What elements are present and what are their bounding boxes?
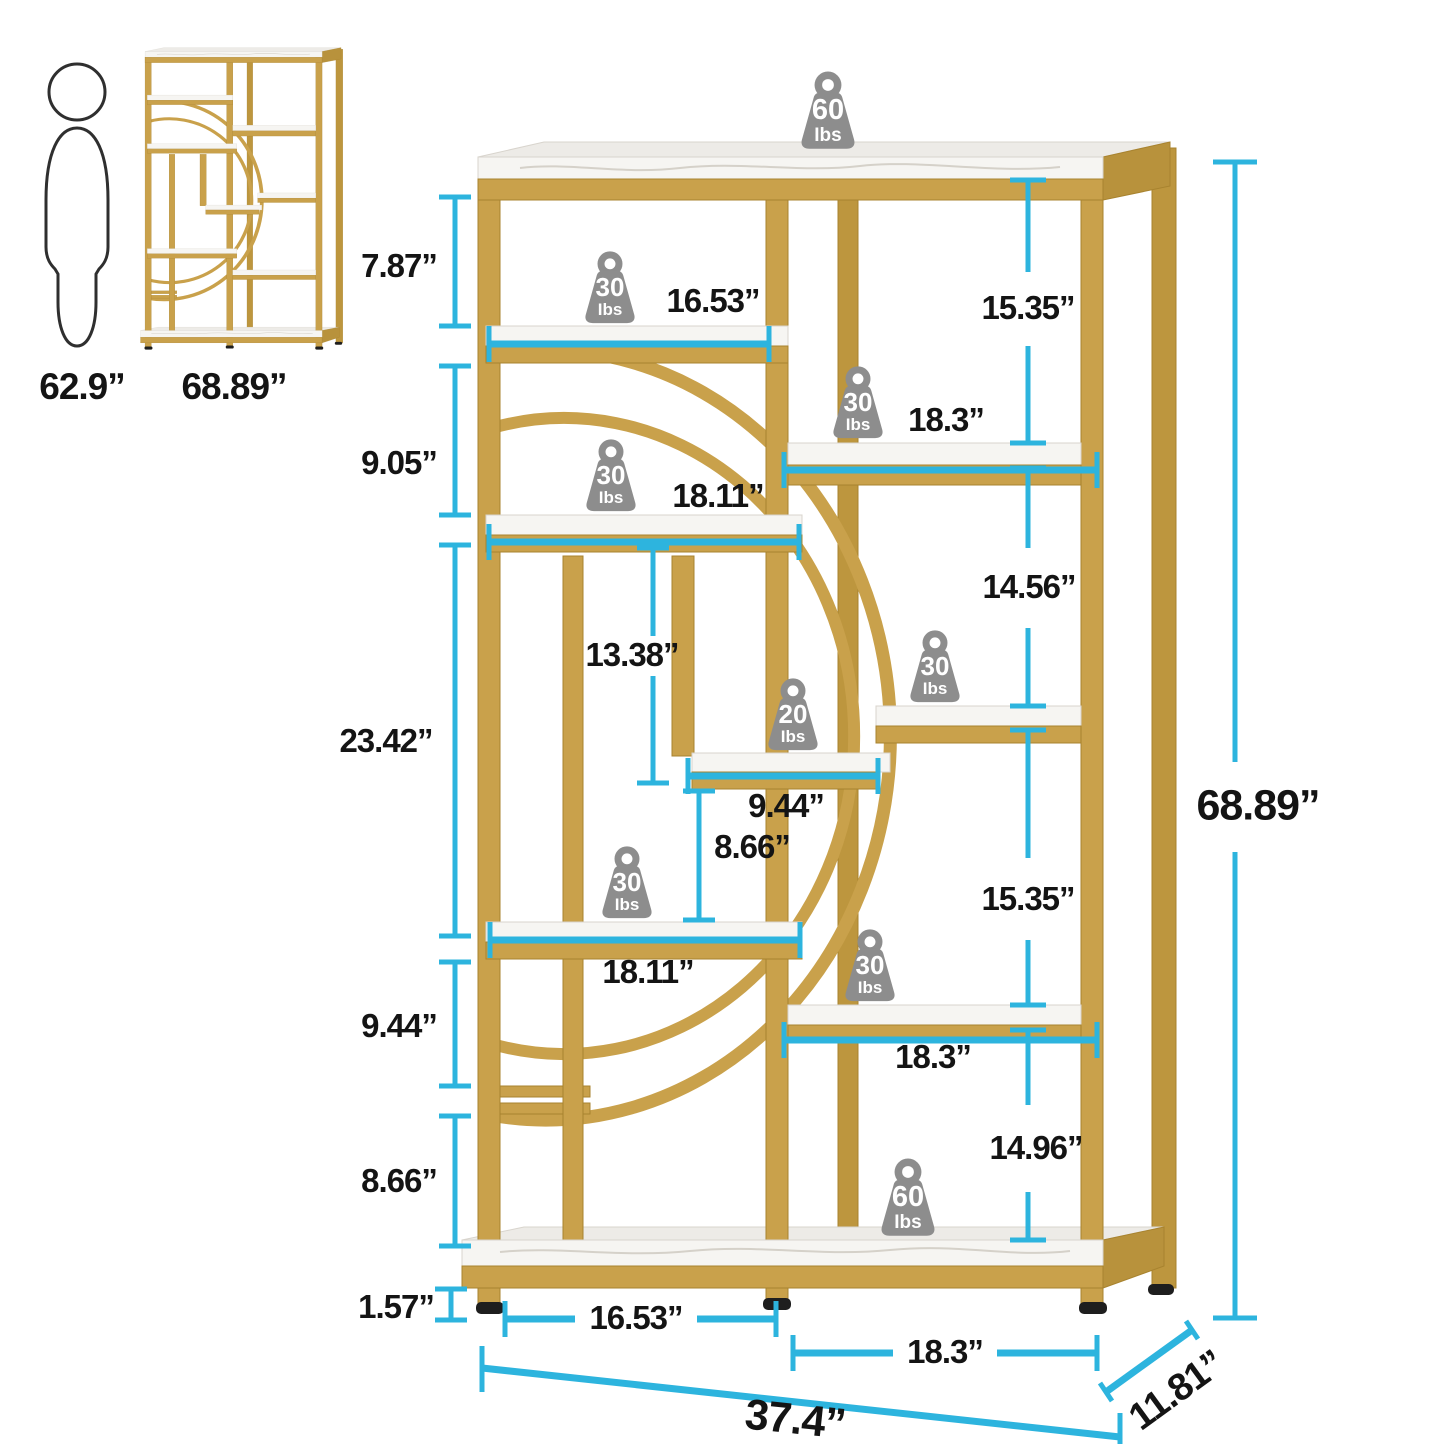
dim-mid-lower: 8.66” xyxy=(714,828,790,866)
weight-value: 20 xyxy=(754,701,832,728)
dim-bottom-left: 16.53” xyxy=(589,1299,682,1337)
weight-unit: Ibs xyxy=(831,979,909,997)
weight-value: 30 xyxy=(896,653,974,680)
weight-value: 30 xyxy=(831,952,909,979)
person-icon xyxy=(46,64,108,346)
weight-unit: Ibs xyxy=(571,301,649,319)
weight-badge-right-shelf-3: 30Ibs xyxy=(831,928,909,1004)
weight-badge-right-shelf-1: 30Ibs xyxy=(819,365,897,441)
weight-unit: Ibs xyxy=(754,728,832,746)
dim-overall-width: 37.4” xyxy=(743,1390,848,1445)
dim-shelf-left-3: 18.11” xyxy=(602,953,693,991)
weight-badge-left-shelf-3: 30Ibs xyxy=(588,845,666,921)
weight-badge-right-shelf-2: 30Ibs xyxy=(896,629,974,705)
weight-value: 30 xyxy=(571,274,649,301)
dim-shelf-right-1: 18.3” xyxy=(908,401,984,439)
weight-badge-middle-shelf: 20Ibs xyxy=(754,677,832,753)
dim-left-4: 9.44” xyxy=(361,1007,437,1045)
weight-badge-left-shelf-2: 30Ibs xyxy=(572,438,650,514)
weight-badge-left-shelf-1: 30Ibs xyxy=(571,250,649,326)
dim-left-5: 8.66” xyxy=(361,1162,437,1200)
weight-value: 30 xyxy=(588,869,666,896)
weight-value: 60 xyxy=(786,95,870,125)
weight-unit: Ibs xyxy=(572,489,650,507)
dim-shelf-middle: 9.44” xyxy=(748,787,824,825)
dim-right-3: 15.35” xyxy=(981,880,1074,918)
weight-unit: Ibs xyxy=(866,1213,950,1233)
dim-left-6: 1.57” xyxy=(358,1288,434,1326)
dim-right-1: 15.35” xyxy=(981,289,1074,327)
weight-value: 30 xyxy=(819,389,897,416)
weight-unit: Ibs xyxy=(588,896,666,914)
weight-value: 60 xyxy=(866,1182,950,1212)
weight-unit: Ibs xyxy=(896,680,974,698)
dim-overall-height: 68.89” xyxy=(1196,782,1319,831)
mini-shelf-icon xyxy=(141,48,343,350)
dim-left-2: 9.05” xyxy=(361,444,437,482)
weight-unit: Ibs xyxy=(786,126,870,146)
dim-shelf-right-3: 18.3” xyxy=(895,1038,971,1076)
dim-shelf-left-2: 18.11” xyxy=(672,477,763,515)
dim-mid-upper: 13.38” xyxy=(585,636,678,674)
dim-shelf-left-1: 16.53” xyxy=(666,282,759,320)
dim-bottom-right: 18.3” xyxy=(907,1333,983,1371)
dim-left-3: 23.42” xyxy=(339,722,432,760)
diagram-graphics xyxy=(0,0,1445,1445)
weight-badge-top: 60Ibs xyxy=(786,70,870,152)
dimension-diagram: 60Ibs 30Ibs 30Ibs 30Ibs 30Ibs 20Ibs 30Ib… xyxy=(0,0,1445,1445)
weight-badge-bottom-shelf: 60Ibs xyxy=(866,1157,950,1239)
weight-value: 30 xyxy=(572,462,650,489)
weight-unit: Ibs xyxy=(819,416,897,434)
person-height-label: 62.9” xyxy=(39,366,125,408)
dim-right-2: 14.56” xyxy=(982,568,1075,606)
dim-right-4: 14.96” xyxy=(989,1129,1082,1167)
dim-left-1: 7.87” xyxy=(361,247,437,285)
mini-unit-height-label: 68.89” xyxy=(181,366,286,408)
